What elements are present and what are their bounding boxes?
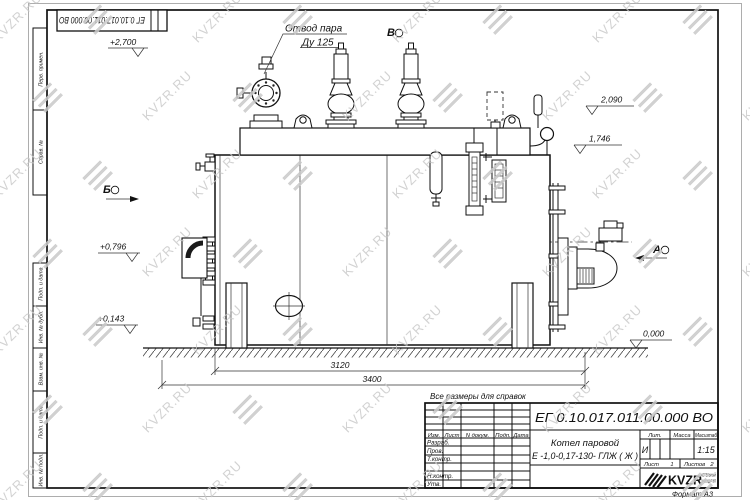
drawing-sheet: Перв. примен. Справ. № Подп. и дата Инв.…	[0, 0, 750, 500]
elevation-mark-zero: 0,000	[630, 329, 672, 349]
margin-label-sprav: Справ. №	[39, 140, 45, 164]
svg-text:3400: 3400	[363, 374, 382, 384]
steam-drum-top	[240, 128, 530, 155]
elevation-mark-2700: +2,700	[108, 37, 148, 57]
title-doc-number: ЕГ 0.10.017.011.00.000 ВО	[535, 411, 713, 425]
col-data: Дата	[512, 433, 529, 439]
sheets-label: Листов	[683, 462, 705, 468]
margin-column: Перв. примен. Справ. № Подп. и дата Инв.…	[33, 28, 47, 488]
margin-label-podp1: Подп. и дата	[39, 267, 45, 300]
support-leg-front	[226, 283, 247, 348]
svg-text:Б: Б	[103, 184, 111, 196]
top-rotated-stamp: ЕГ 0.10.017.011.00.000 ВО	[57, 10, 167, 31]
view-marker-v: В	[387, 27, 403, 39]
gauge-siphon-loop	[530, 128, 554, 156]
col-list: Лист	[444, 433, 460, 439]
product-line1: Котел паровой	[551, 438, 620, 449]
svg-text:0,000: 0,000	[643, 329, 665, 339]
kvzr-logo: KVZR КОТЕЛЬНЫЙ ЗАВОД РЭП	[645, 473, 716, 489]
elevation-mark-0796: +0,796	[98, 242, 140, 262]
format-note: Формат А3	[672, 490, 714, 499]
brand-sub2: ЗАВОД РЭП	[701, 479, 716, 484]
view-marker-b: Б	[103, 184, 139, 202]
row-utv: Утв.	[426, 481, 441, 488]
margin-label-vzam: Взам. инв. №	[39, 352, 45, 385]
safety-valve-1	[326, 43, 356, 128]
support-leg-rear	[512, 283, 533, 348]
callout-line1: Отвод пара	[285, 24, 343, 35]
front-elbow-box	[182, 238, 207, 278]
chimney-outline-dashed	[487, 92, 503, 128]
row-tkontr: Т.контр.	[427, 456, 452, 463]
elevation-mark-1746: 1,746	[574, 134, 622, 154]
margin-label-inv-podl: Инв. № подл.	[39, 454, 45, 487]
lit-header: Лит.	[647, 433, 662, 439]
sheet-label: Лист	[643, 462, 659, 468]
col-podp: Подп.	[495, 433, 510, 439]
svg-text:+2,700: +2,700	[110, 37, 137, 47]
boiler-assembly-drawing: Перв. примен. Справ. № Подп. и дата Инв.…	[0, 0, 750, 500]
row-prov: Пров.	[427, 448, 443, 455]
col-ndoc: N докум.	[466, 433, 489, 439]
mass-header: Масса	[673, 433, 691, 439]
reference-note: Все размеры для справок	[430, 392, 527, 401]
margin-label-inv-dubl: Инв. № дубл.	[39, 311, 45, 344]
svg-text:1,746: 1,746	[589, 134, 611, 144]
col-izm: Изм.	[428, 433, 440, 439]
view-marker-a: А	[635, 244, 669, 261]
lifting-lug-front	[294, 115, 312, 128]
elevation-mark-2090: 2,090	[586, 95, 634, 115]
margin-label-perv: Перв. примен.	[39, 51, 45, 86]
scale-header: Масштаб	[695, 433, 718, 439]
title-block: ЕГ 0.10.017.011.00.000 ВО Изм. Лист N до…	[425, 403, 718, 488]
steam-outlet-valve	[237, 57, 282, 128]
lifting-lug-rear	[503, 115, 521, 128]
ground-hatch	[143, 348, 648, 358]
scale-value: 1:15	[697, 445, 716, 455]
svg-text:+0,143: +0,143	[98, 314, 125, 324]
sheets-value: 2	[709, 462, 714, 468]
callout-line2: Ду 125	[301, 38, 334, 49]
dimension-overall: 3400	[158, 360, 589, 389]
sheet-value: 1	[670, 462, 673, 468]
safety-valve-2	[396, 43, 426, 128]
lit-value: И	[642, 445, 649, 455]
pressure-gauge-fitting	[534, 95, 542, 128]
burner	[558, 221, 623, 315]
product-line2: Е -1,0-0,17-130- ГЛЖ ( Ж )	[532, 451, 638, 461]
svg-text:А: А	[652, 244, 661, 256]
svg-text:2,090: 2,090	[600, 95, 623, 105]
svg-text:3120: 3120	[331, 360, 350, 370]
row-nkontr: Н.контр.	[427, 473, 453, 480]
svg-text:В: В	[387, 27, 395, 39]
brand-name: KVZR	[668, 474, 702, 488]
brand-sub1: КОТЕЛЬНЫЙ	[701, 473, 716, 478]
elevation-mark-0143: +0,143	[96, 314, 138, 334]
margin-label-podp2: Подп. и дата	[39, 405, 45, 438]
svg-text:+0,796: +0,796	[100, 242, 127, 252]
rotated-doc-number: ЕГ 0.10.017.011.00.000 ВО	[59, 15, 145, 25]
row-razrab: Разраб.	[427, 440, 449, 447]
